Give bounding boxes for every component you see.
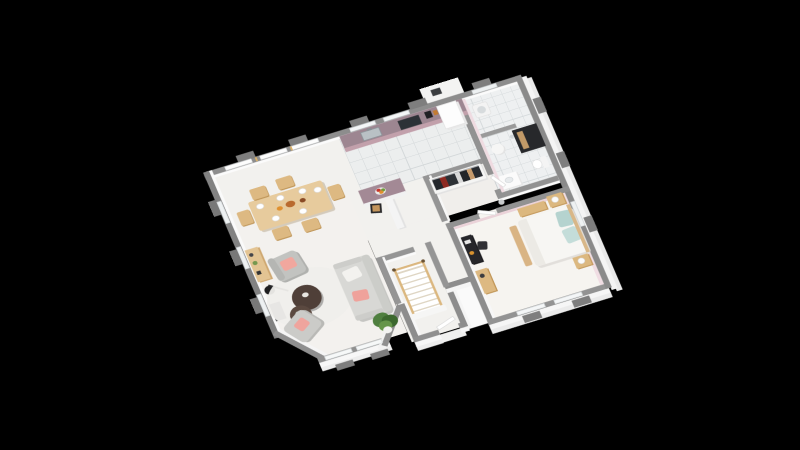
floorplan-3d <box>203 75 612 385</box>
bathroom-door <box>490 175 506 187</box>
render-canvas <box>0 0 800 450</box>
front-door <box>436 316 456 330</box>
doors-layer <box>203 75 612 385</box>
bedroom-door <box>477 210 496 215</box>
